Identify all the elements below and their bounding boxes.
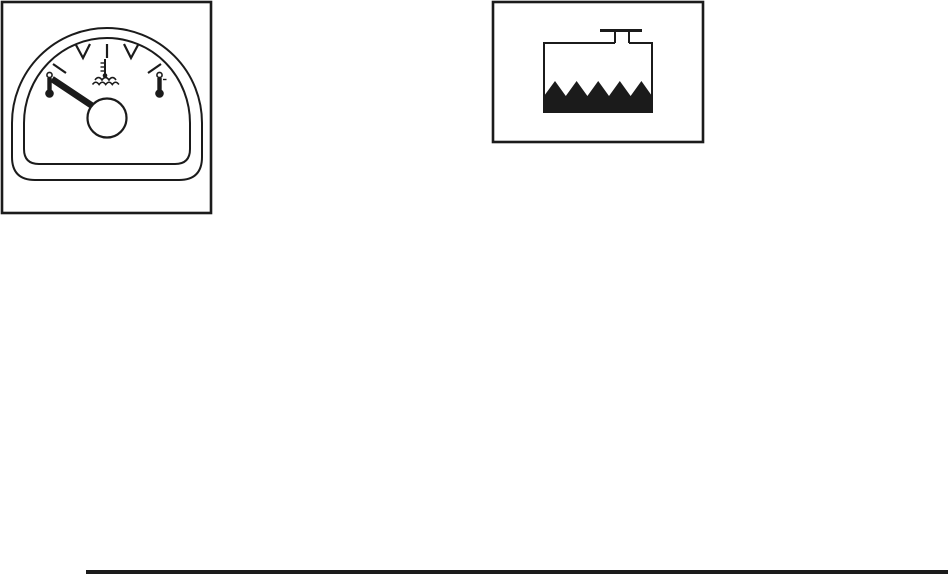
temperature-gauge-icon [2,2,211,213]
cold-thermometer-icon [45,72,56,97]
coolant-liquid [544,81,652,111]
coolant-level-figure [490,0,706,146]
cold-thermo-top [47,72,52,77]
footer-rule [86,570,948,574]
wave-top [95,78,116,80]
hot-thermometer-icon [155,72,166,97]
temperature-gauge-figure [0,0,215,216]
tick-left-end [53,64,66,73]
thermo-scale-ticks [101,63,105,71]
gauge-hub [88,99,127,138]
tick-left-major [76,44,90,58]
wave-bottom [93,82,119,84]
coolant-temperature-icon [93,59,119,85]
figure-border [493,2,703,142]
tick-right-major [124,44,138,58]
manual-page [0,0,948,576]
hot-thermo-top [157,72,162,77]
cold-thermo-bulb [45,89,54,98]
coolant-level-icon [493,2,703,142]
hot-thermo-bulb [155,89,164,98]
